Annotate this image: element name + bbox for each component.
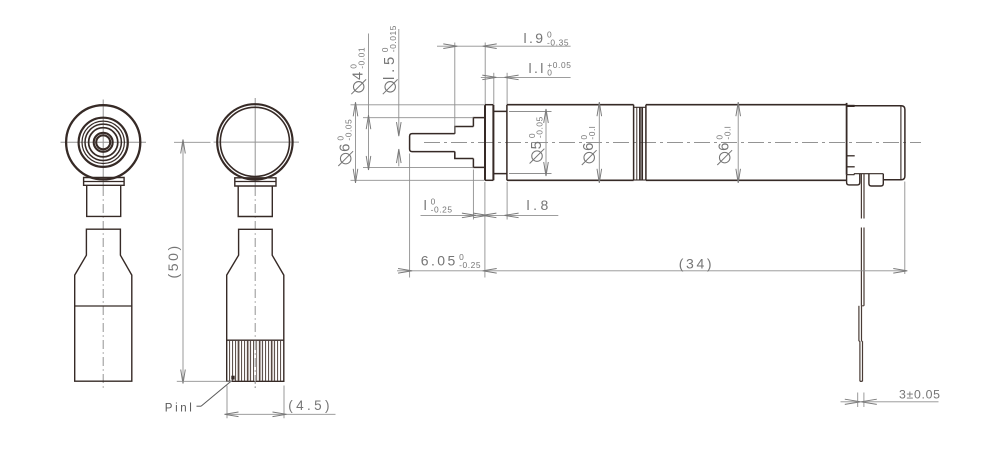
- svg-text:l.8: l.8: [527, 197, 552, 213]
- svg-text:6: 6: [717, 140, 733, 150]
- svg-text:l.9: l.9: [524, 30, 546, 46]
- svg-text:6: 6: [581, 140, 597, 150]
- svg-text:-0.25: -0.25: [431, 204, 453, 214]
- svg-text:Pinl: Pinl: [165, 402, 195, 414]
- svg-text:0: 0: [547, 68, 552, 78]
- svg-text:6.05: 6.05: [421, 253, 458, 269]
- svg-text:5: 5: [529, 139, 545, 149]
- svg-text:l.l: l.l: [529, 60, 546, 76]
- svg-text:(4.5): (4.5): [288, 398, 333, 413]
- svg-text:-0.l: -0.l: [587, 126, 597, 140]
- svg-text:-0.01: -0.01: [356, 47, 366, 69]
- svg-text:-0.l: -0.l: [722, 126, 732, 140]
- svg-text:-0.015: -0.015: [388, 25, 398, 52]
- svg-text:l.5: l.5: [382, 53, 398, 80]
- svg-text:6: 6: [338, 141, 354, 151]
- svg-text:l: l: [424, 197, 430, 213]
- svg-text:(34): (34): [679, 256, 714, 272]
- svg-text:(50): (50): [165, 243, 181, 278]
- svg-text:-0.35: -0.35: [547, 37, 569, 47]
- svg-text:3±0.05: 3±0.05: [899, 387, 941, 401]
- svg-text:4: 4: [351, 70, 367, 80]
- svg-text:-0.05: -0.05: [535, 116, 545, 138]
- svg-text:-0.25: -0.25: [459, 260, 481, 270]
- svg-text:-0.05: -0.05: [343, 119, 353, 141]
